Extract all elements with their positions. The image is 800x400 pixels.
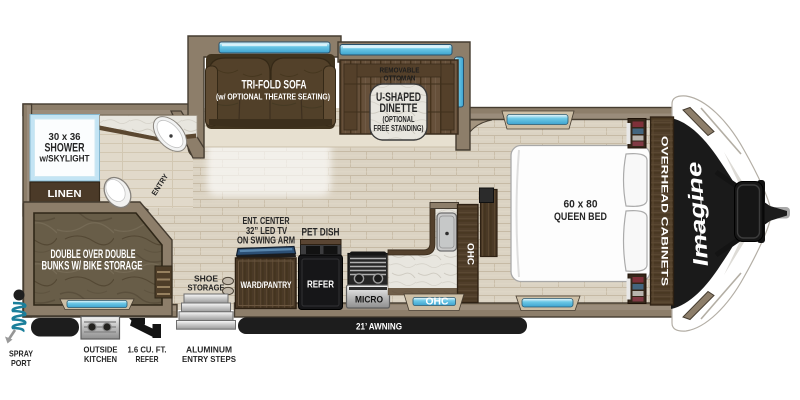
svg-text:OUTSIDE: OUTSIDE [84,345,118,355]
svg-text:WARD/PANTRY: WARD/PANTRY [241,280,292,290]
svg-text:OVERHEAD CABINETS: OVERHEAD CABINETS [660,136,670,286]
svg-text:REFER: REFER [307,280,334,291]
svg-text:SPRAY: SPRAY [9,349,33,359]
svg-text:OTTOMAN: OTTOMAN [384,74,416,83]
svg-text:ENTRY STEPS: ENTRY STEPS [182,354,236,364]
svg-text:1.6 CU. FT.: 1.6 CU. FT. [128,345,167,355]
svg-text:MICRO: MICRO [355,295,383,306]
svg-text:REFER: REFER [136,354,159,364]
svg-text:STORAGE: STORAGE [188,283,225,293]
svg-text:60 x 80: 60 x 80 [564,199,598,211]
svg-text:LINEN: LINEN [48,188,82,200]
svg-text:(w/ OPTIONAL THEATRE SEATING): (w/ OPTIONAL THEATRE SEATING) [216,92,330,102]
svg-text:FREE STANDING): FREE STANDING) [374,124,424,133]
svg-text:ALUMINUM: ALUMINUM [186,345,232,355]
svg-text:BUNKS W/ BIKE STORAGE: BUNKS W/ BIKE STORAGE [42,261,143,273]
svg-text:(OPTIONAL: (OPTIONAL [383,115,415,124]
svg-text:OHC: OHC [426,297,449,308]
svg-text:21’ AWNING: 21’ AWNING [356,322,402,332]
svg-text:w/SKYLIGHT: w/SKYLIGHT [39,154,90,165]
svg-text:OHC: OHC [466,243,476,266]
svg-text:TRI-FOLD SOFA: TRI-FOLD SOFA [242,78,307,92]
svg-text:SHOWER: SHOWER [45,141,85,155]
svg-text:DINETTE: DINETTE [380,103,418,115]
svg-text:QUEEN BED: QUEEN BED [554,211,607,223]
svg-text:PORT: PORT [11,358,32,368]
svg-text:PET DISH: PET DISH [302,227,340,239]
svg-text:DOUBLE OVER DOUBLE: DOUBLE OVER DOUBLE [51,249,136,261]
svg-text:KITCHEN: KITCHEN [84,354,117,364]
svg-text:ON SWING ARM: ON SWING ARM [237,236,295,247]
